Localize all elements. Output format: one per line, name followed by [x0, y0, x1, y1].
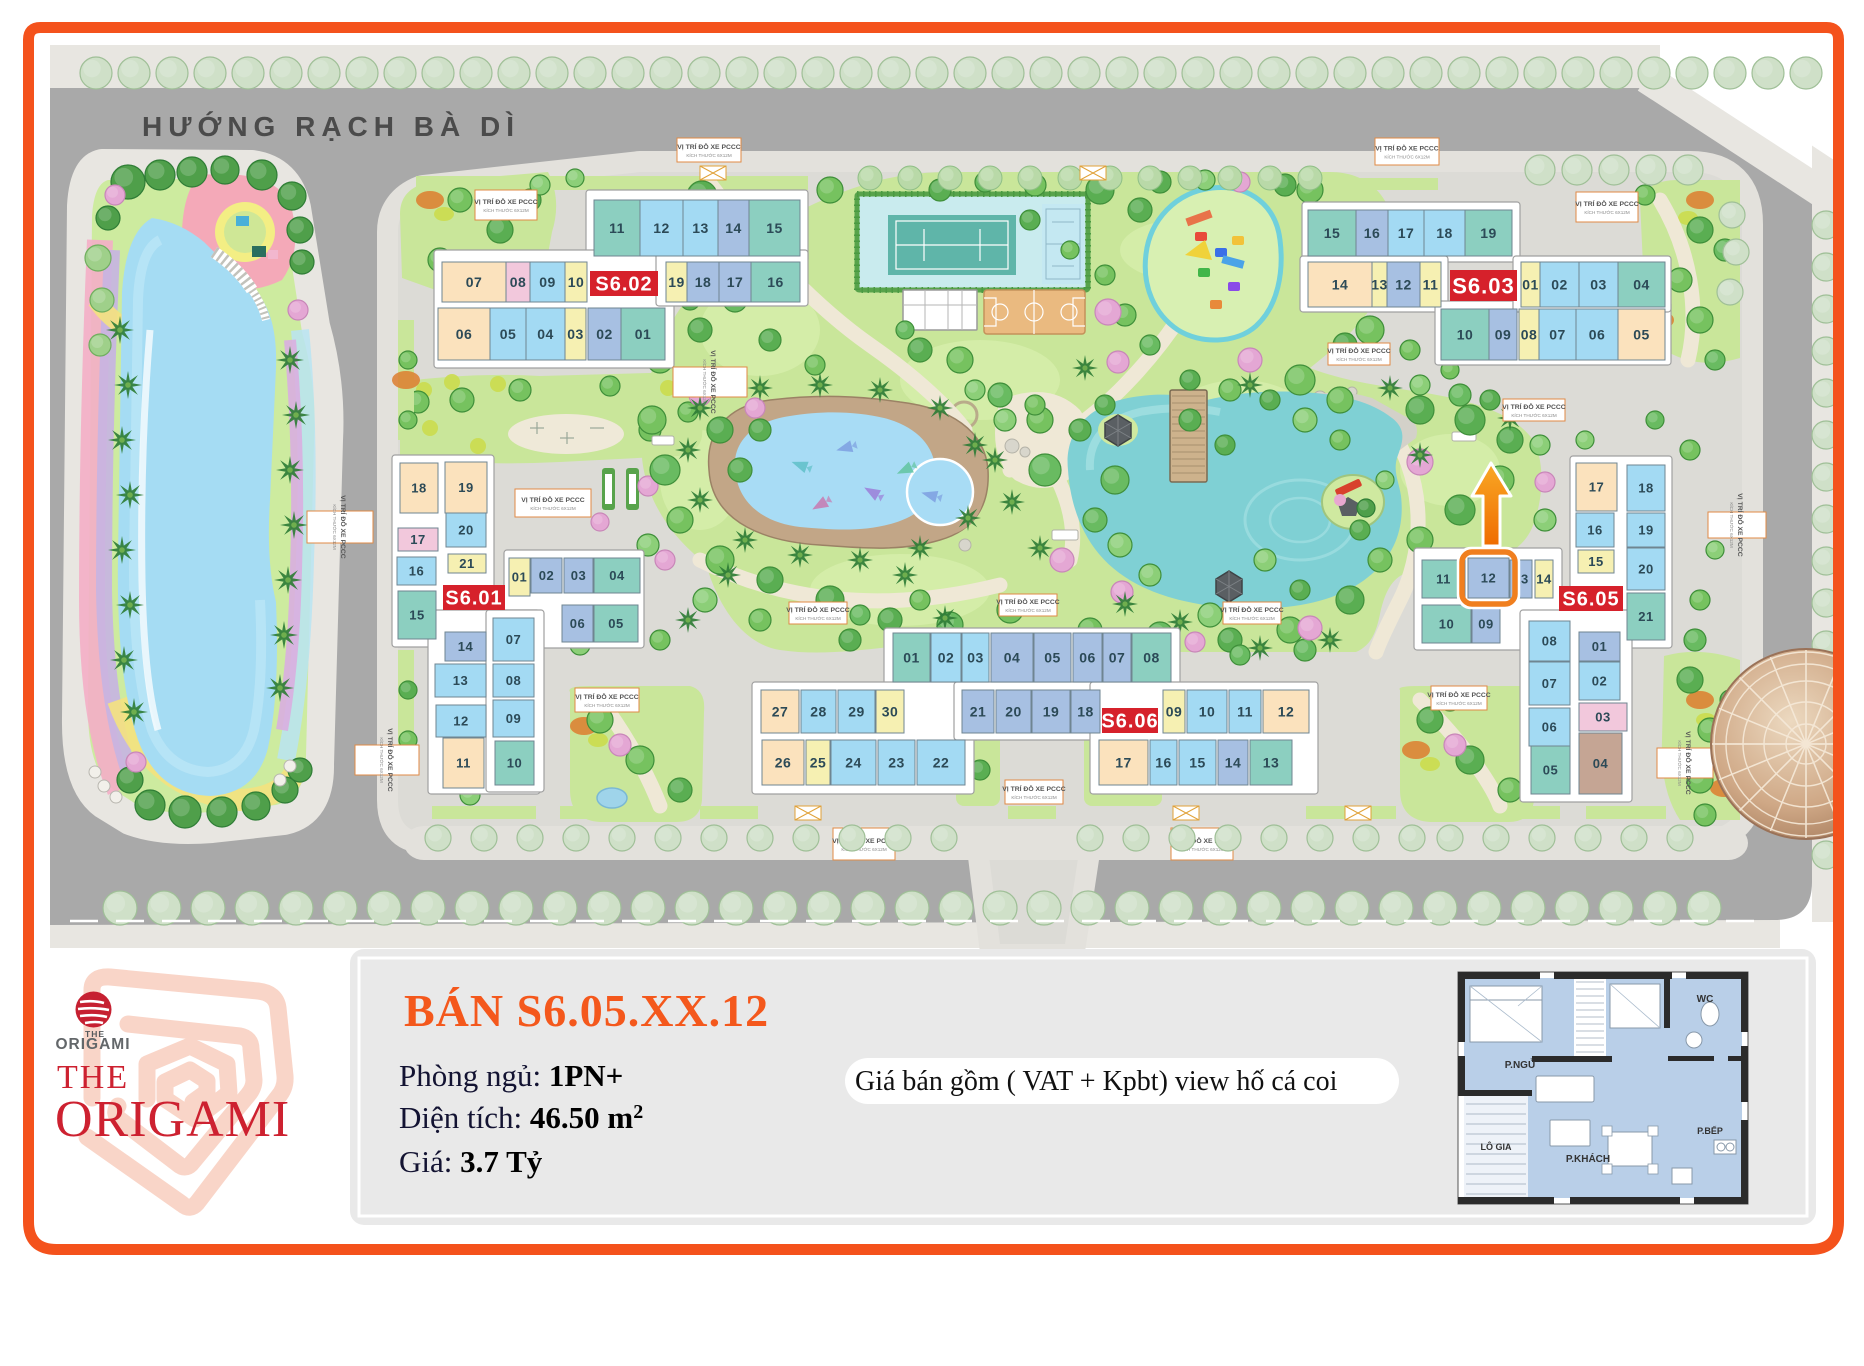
svg-text:09: 09 — [1495, 327, 1512, 343]
svg-text:KÍCH THƯỚC 6X12M: KÍCH THƯỚC 6X12M — [1511, 412, 1556, 418]
svg-text:13: 13 — [692, 220, 709, 236]
svg-text:KÍCH THƯỚC 6X12M: KÍCH THƯỚC 6X12M — [686, 152, 731, 158]
svg-text:VỊ TRÍ ĐỖ XE PCCC: VỊ TRÍ ĐỖ XE PCCC — [1375, 144, 1439, 153]
svg-text:15: 15 — [766, 220, 783, 236]
svg-text:06: 06 — [570, 616, 585, 631]
svg-text:12: 12 — [453, 714, 468, 729]
svg-text:10: 10 — [507, 756, 522, 771]
svg-text:KÍCH THƯỚC 6X12M: KÍCH THƯỚC 6X12M — [1729, 502, 1735, 547]
svg-text:07: 07 — [1109, 650, 1126, 666]
svg-text:01: 01 — [635, 326, 652, 342]
svg-text:18: 18 — [1436, 225, 1453, 241]
svg-text:P.KHÁCH: P.KHÁCH — [1566, 1152, 1610, 1165]
svg-text:10: 10 — [1199, 704, 1216, 720]
svg-text:04: 04 — [1633, 277, 1650, 293]
svg-text:14: 14 — [458, 639, 474, 654]
svg-text:02: 02 — [938, 650, 955, 666]
svg-text:03: 03 — [567, 326, 584, 342]
svg-text:VỊ TRÍ ĐỖ XE PCCC: VỊ TRÍ ĐỖ XE PCCC — [1327, 346, 1391, 355]
svg-text:07: 07 — [506, 632, 521, 647]
svg-text:KÍCH THƯỚC 6X12M: KÍCH THƯỚC 6X12M — [1436, 700, 1481, 706]
svg-text:12: 12 — [1278, 704, 1295, 720]
svg-text:05: 05 — [1633, 327, 1650, 343]
svg-text:11: 11 — [456, 756, 471, 771]
svg-text:15: 15 — [1189, 755, 1206, 771]
svg-text:04: 04 — [609, 568, 625, 583]
svg-text:ORIGAMI: ORIGAMI — [55, 1091, 290, 1148]
svg-text:18: 18 — [1638, 481, 1653, 496]
svg-text:VỊ TRÍ ĐỖ XE PCCC: VỊ TRÍ ĐỖ XE PCCC — [1427, 690, 1491, 699]
svg-text:13: 13 — [1263, 755, 1280, 771]
svg-text:14: 14 — [1225, 755, 1242, 771]
svg-text:01: 01 — [512, 570, 527, 585]
svg-text:23: 23 — [888, 755, 905, 771]
svg-text:VỊ TRÍ ĐỖ XE PCCC: VỊ TRÍ ĐỖ XE PCCC — [1220, 605, 1284, 614]
svg-text:07: 07 — [1549, 327, 1566, 343]
svg-text:18: 18 — [411, 481, 426, 496]
svg-text:VỊ TRÍ ĐỖ XE PCCC: VỊ TRÍ ĐỖ XE PCCC — [1684, 731, 1693, 795]
svg-text:16: 16 — [1364, 225, 1381, 241]
svg-text:S6.06: S6.06 — [1101, 711, 1158, 733]
svg-text:BÁN S6.05.XX.12: BÁN S6.05.XX.12 — [404, 985, 769, 1036]
svg-text:17: 17 — [1115, 755, 1132, 771]
svg-text:14: 14 — [725, 220, 742, 236]
svg-text:WC: WC — [1697, 994, 1714, 1005]
svg-text:06: 06 — [456, 326, 473, 342]
svg-text:04: 04 — [1004, 650, 1021, 666]
svg-text:03: 03 — [1590, 277, 1607, 293]
svg-text:08: 08 — [506, 673, 521, 688]
svg-text:14: 14 — [1536, 572, 1552, 587]
svg-text:VỊ TRÍ ĐỖ XE PCCC: VỊ TRÍ ĐỖ XE PCCC — [786, 605, 850, 614]
svg-text:S6.02: S6.02 — [595, 274, 652, 296]
svg-text:15: 15 — [1324, 225, 1341, 241]
svg-text:VỊ TRÍ ĐỖ XE PCCC: VỊ TRÍ ĐỖ XE PCCC — [1002, 784, 1066, 793]
svg-text:P.NGỦ: P.NGỦ — [1505, 1058, 1535, 1071]
svg-text:05: 05 — [1543, 763, 1558, 778]
svg-text:08: 08 — [1542, 634, 1557, 649]
svg-text:04: 04 — [537, 326, 554, 342]
svg-text:KÍCH THƯỚC 6X12M: KÍCH THƯỚC 6X12M — [1005, 607, 1050, 613]
svg-text:06: 06 — [1589, 327, 1606, 343]
svg-text:KÍCH THƯỚC 6X12M: KÍCH THƯỚC 6X12M — [795, 615, 840, 621]
svg-text:15: 15 — [1588, 554, 1603, 569]
svg-text:09: 09 — [1478, 617, 1493, 632]
svg-text:05: 05 — [500, 326, 517, 342]
svg-text:06: 06 — [1542, 720, 1557, 735]
svg-text:01: 01 — [1522, 277, 1539, 293]
svg-text:14: 14 — [1332, 277, 1349, 293]
svg-text:02: 02 — [1592, 674, 1607, 689]
svg-text:19: 19 — [458, 480, 473, 495]
svg-text:09: 09 — [506, 711, 521, 726]
svg-text:16: 16 — [1155, 755, 1172, 771]
svg-text:06: 06 — [1079, 650, 1096, 666]
svg-text:10: 10 — [1457, 327, 1474, 343]
svg-text:KÍCH THƯỚC 6X12M: KÍCH THƯỚC 6X12M — [1677, 740, 1683, 785]
svg-text:20: 20 — [1638, 562, 1653, 577]
svg-text:Giá bán gồm ( VAT + Kpbt) view: Giá bán gồm ( VAT + Kpbt) view hố cá coi — [855, 1066, 1338, 1097]
svg-text:11: 11 — [1423, 277, 1439, 293]
svg-text:26: 26 — [775, 755, 792, 771]
svg-text:S6.03: S6.03 — [1452, 273, 1515, 298]
svg-text:Phòng ngủ: 1PN+: Phòng ngủ: 1PN+ — [399, 1058, 623, 1093]
svg-text:03: 03 — [1595, 710, 1610, 725]
svg-text:02: 02 — [539, 568, 554, 583]
svg-text:VỊ TRÍ ĐỖ XE PCCC: VỊ TRÍ ĐỖ XE PCCC — [1502, 402, 1566, 411]
svg-text:20: 20 — [458, 523, 473, 538]
svg-text:HƯỚNG RẠCH BÀ DÌ: HƯỚNG RẠCH BÀ DÌ — [142, 111, 520, 142]
svg-text:18: 18 — [695, 274, 712, 290]
svg-text:09: 09 — [539, 274, 556, 290]
svg-text:ORIGAMI: ORIGAMI — [55, 1036, 130, 1053]
svg-text:07: 07 — [1542, 676, 1557, 691]
svg-text:VỊ TRÍ ĐỖ XE PCCC: VỊ TRÍ ĐỖ XE PCCC — [386, 728, 395, 792]
svg-text:21: 21 — [459, 556, 474, 571]
svg-text:11: 11 — [1237, 704, 1253, 720]
svg-text:KÍCH THƯỚC 6X12M: KÍCH THƯỚC 6X12M — [379, 737, 385, 782]
svg-text:05: 05 — [1044, 650, 1061, 666]
svg-text:08: 08 — [510, 274, 527, 290]
svg-text:KÍCH THƯỚC 6X12M: KÍCH THƯỚC 6X12M — [1384, 154, 1429, 160]
svg-text:27: 27 — [772, 704, 789, 720]
svg-text:05: 05 — [608, 616, 623, 631]
svg-text:P.BẾP: P.BẾP — [1697, 1126, 1723, 1136]
svg-text:18: 18 — [1077, 704, 1094, 720]
svg-text:12: 12 — [1481, 571, 1496, 586]
svg-text:16: 16 — [1587, 523, 1602, 538]
svg-text:13: 13 — [453, 673, 468, 688]
svg-text:KÍCH THƯỚC 6X12M: KÍCH THƯỚC 6X12M — [332, 504, 338, 549]
svg-text:30: 30 — [882, 704, 899, 720]
svg-text:KÍCH THƯỚC 6X12M: KÍCH THƯỚC 6X12M — [483, 207, 528, 213]
svg-text:19: 19 — [1638, 523, 1653, 538]
svg-text:09: 09 — [1166, 704, 1183, 720]
svg-text:VỊ TRÍ ĐỖ XE PCCC: VỊ TRÍ ĐỖ XE PCCC — [575, 692, 639, 701]
svg-text:16: 16 — [767, 274, 784, 290]
svg-text:20: 20 — [1005, 704, 1022, 720]
svg-text:08: 08 — [1521, 327, 1538, 343]
svg-text:VỊ TRÍ ĐỖ XE PCCC: VỊ TRÍ ĐỖ XE PCCC — [677, 142, 741, 151]
svg-text:LÔ GIA: LÔ GIA — [1481, 1141, 1512, 1152]
svg-text:VỊ TRÍ ĐỖ XE PCCC: VỊ TRÍ ĐỖ XE PCCC — [339, 495, 348, 559]
svg-text:19: 19 — [1043, 704, 1060, 720]
svg-text:VỊ TRÍ ĐỖ XE PCCC: VỊ TRÍ ĐỖ XE PCCC — [521, 495, 585, 504]
svg-text:Giá: 3.7 Tỷ: Giá: 3.7 Tỷ — [399, 1144, 543, 1179]
svg-text:KÍCH THƯỚC 6X12M: KÍCH THƯỚC 6X12M — [530, 505, 575, 511]
svg-text:15: 15 — [409, 608, 424, 623]
svg-text:KÍCH THƯỚC 6X12M: KÍCH THƯỚC 6X12M — [584, 702, 629, 708]
svg-text:KÍCH THƯỚC 6X12M: KÍCH THƯỚC 6X12M — [1584, 209, 1629, 215]
svg-text:13: 13 — [1371, 277, 1388, 293]
svg-text:24: 24 — [845, 755, 862, 771]
svg-text:02: 02 — [596, 326, 613, 342]
svg-text:21: 21 — [970, 704, 987, 720]
svg-text:03: 03 — [571, 568, 586, 583]
svg-text:S6.01: S6.01 — [445, 588, 502, 610]
svg-text:12: 12 — [653, 220, 670, 236]
svg-text:VỊ TRÍ ĐỖ XE PCCC: VỊ TRÍ ĐỖ XE PCCC — [1575, 199, 1639, 208]
svg-text:19: 19 — [1480, 225, 1497, 241]
svg-text:17: 17 — [727, 274, 744, 290]
svg-text:KÍCH THƯỚC 6X12M: KÍCH THƯỚC 6X12M — [702, 359, 708, 404]
svg-text:08: 08 — [1143, 650, 1160, 666]
svg-text:16: 16 — [409, 564, 424, 579]
svg-text:KÍCH THƯỚC 6X12M: KÍCH THƯỚC 6X12M — [1336, 356, 1381, 362]
svg-text:01: 01 — [1592, 639, 1607, 654]
svg-text:VỊ TRÍ ĐỖ XE PCCC: VỊ TRÍ ĐỖ XE PCCC — [709, 350, 718, 414]
svg-text:S6.05: S6.05 — [1562, 589, 1619, 611]
svg-text:22: 22 — [933, 755, 950, 771]
svg-text:11: 11 — [609, 220, 625, 236]
svg-text:28: 28 — [810, 704, 827, 720]
svg-text:07: 07 — [466, 274, 483, 290]
svg-text:12: 12 — [1395, 277, 1412, 293]
svg-text:03: 03 — [967, 650, 984, 666]
svg-text:01: 01 — [903, 650, 920, 666]
svg-text:17: 17 — [1589, 480, 1604, 495]
svg-text:Diện tích: 46.50 m2: Diện tích: 46.50 m2 — [399, 1100, 643, 1135]
svg-text:VỊ TRÍ ĐỖ XE PCCC: VỊ TRÍ ĐỖ XE PCCC — [996, 597, 1060, 606]
svg-text:VỊ TRÍ ĐỖ XE PCCC: VỊ TRÍ ĐỖ XE PCCC — [1736, 493, 1745, 557]
svg-text:11: 11 — [1436, 572, 1451, 587]
svg-text:19: 19 — [668, 274, 685, 290]
svg-text:25: 25 — [810, 755, 827, 771]
svg-text:21: 21 — [1638, 609, 1653, 624]
svg-text:10: 10 — [1439, 617, 1454, 632]
svg-text:17: 17 — [1398, 225, 1415, 241]
svg-text:10: 10 — [568, 274, 585, 290]
svg-text:VỊ TRÍ ĐỖ XE PCCC: VỊ TRÍ ĐỖ XE PCCC — [474, 197, 538, 206]
svg-text:17: 17 — [410, 532, 425, 547]
svg-text:29: 29 — [848, 704, 865, 720]
svg-text:KÍCH THƯỚC 6X12M: KÍCH THƯỚC 6X12M — [1229, 615, 1274, 621]
svg-text:KÍCH THƯỚC 6X12M: KÍCH THƯỚC 6X12M — [1011, 794, 1056, 800]
svg-text:04: 04 — [1593, 756, 1609, 771]
svg-text:02: 02 — [1551, 277, 1568, 293]
